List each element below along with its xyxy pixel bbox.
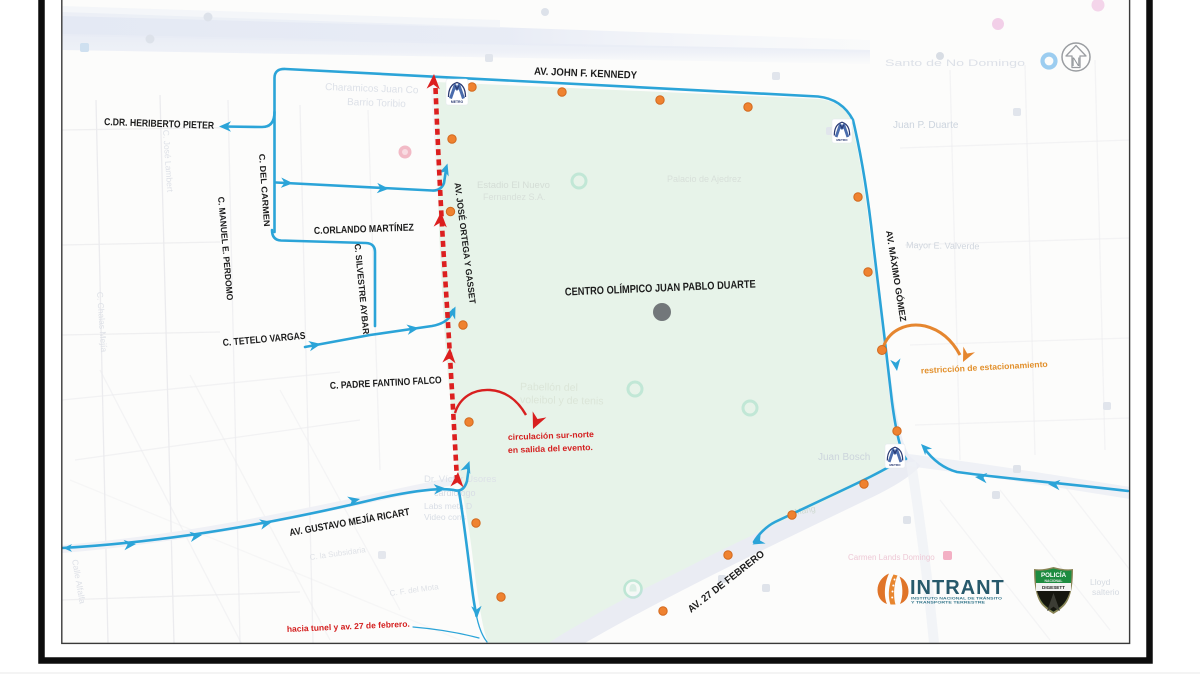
svg-text:Juan P. Duarte: Juan P. Duarte [893,120,959,131]
svg-text:METRO: METRO [836,138,848,142]
svg-text:Santo de No Domingo: Santo de No Domingo [885,58,1025,68]
svg-text:NACIONAL: NACIONAL [1045,579,1063,583]
svg-text:Carmen Lands Domingo: Carmen Lands Domingo [848,553,935,562]
svg-text:salterio: salterio [1092,587,1120,597]
svg-text:METRO: METRO [451,100,464,104]
svg-text:N: N [1072,55,1081,69]
svg-text:DIGESETT: DIGESETT [1042,585,1065,590]
svg-text:Palacio de Ajedrez: Palacio de Ajedrez [667,174,742,184]
svg-text:Y TRANSPORTE TERRESTRE: Y TRANSPORTE TERRESTRE [911,601,986,605]
svg-text:METRO: METRO [889,463,901,467]
svg-text:Estadio El Nuevo: Estadio El Nuevo [477,180,550,191]
svg-text:Pabellón del: Pabellón del [520,381,578,394]
svg-text:voleibol y de tenis: voleibol y de tenis [520,394,604,407]
svg-text:Video cons: Video cons [424,512,466,522]
svg-text:Lloyd: Lloyd [1090,577,1111,587]
svg-text:Fernandez S.A.: Fernandez S.A. [483,192,546,202]
svg-text:Barrio Toribio: Barrio Toribio [347,97,407,110]
svg-text:POLICÍA: POLICÍA [1041,571,1067,579]
svg-text:Mayor E. Valverde: Mayor E. Valverde [906,240,980,251]
svg-text:Labs meta D: Labs meta D [424,501,472,511]
svg-text:Juan Bosch: Juan Bosch [818,452,870,463]
